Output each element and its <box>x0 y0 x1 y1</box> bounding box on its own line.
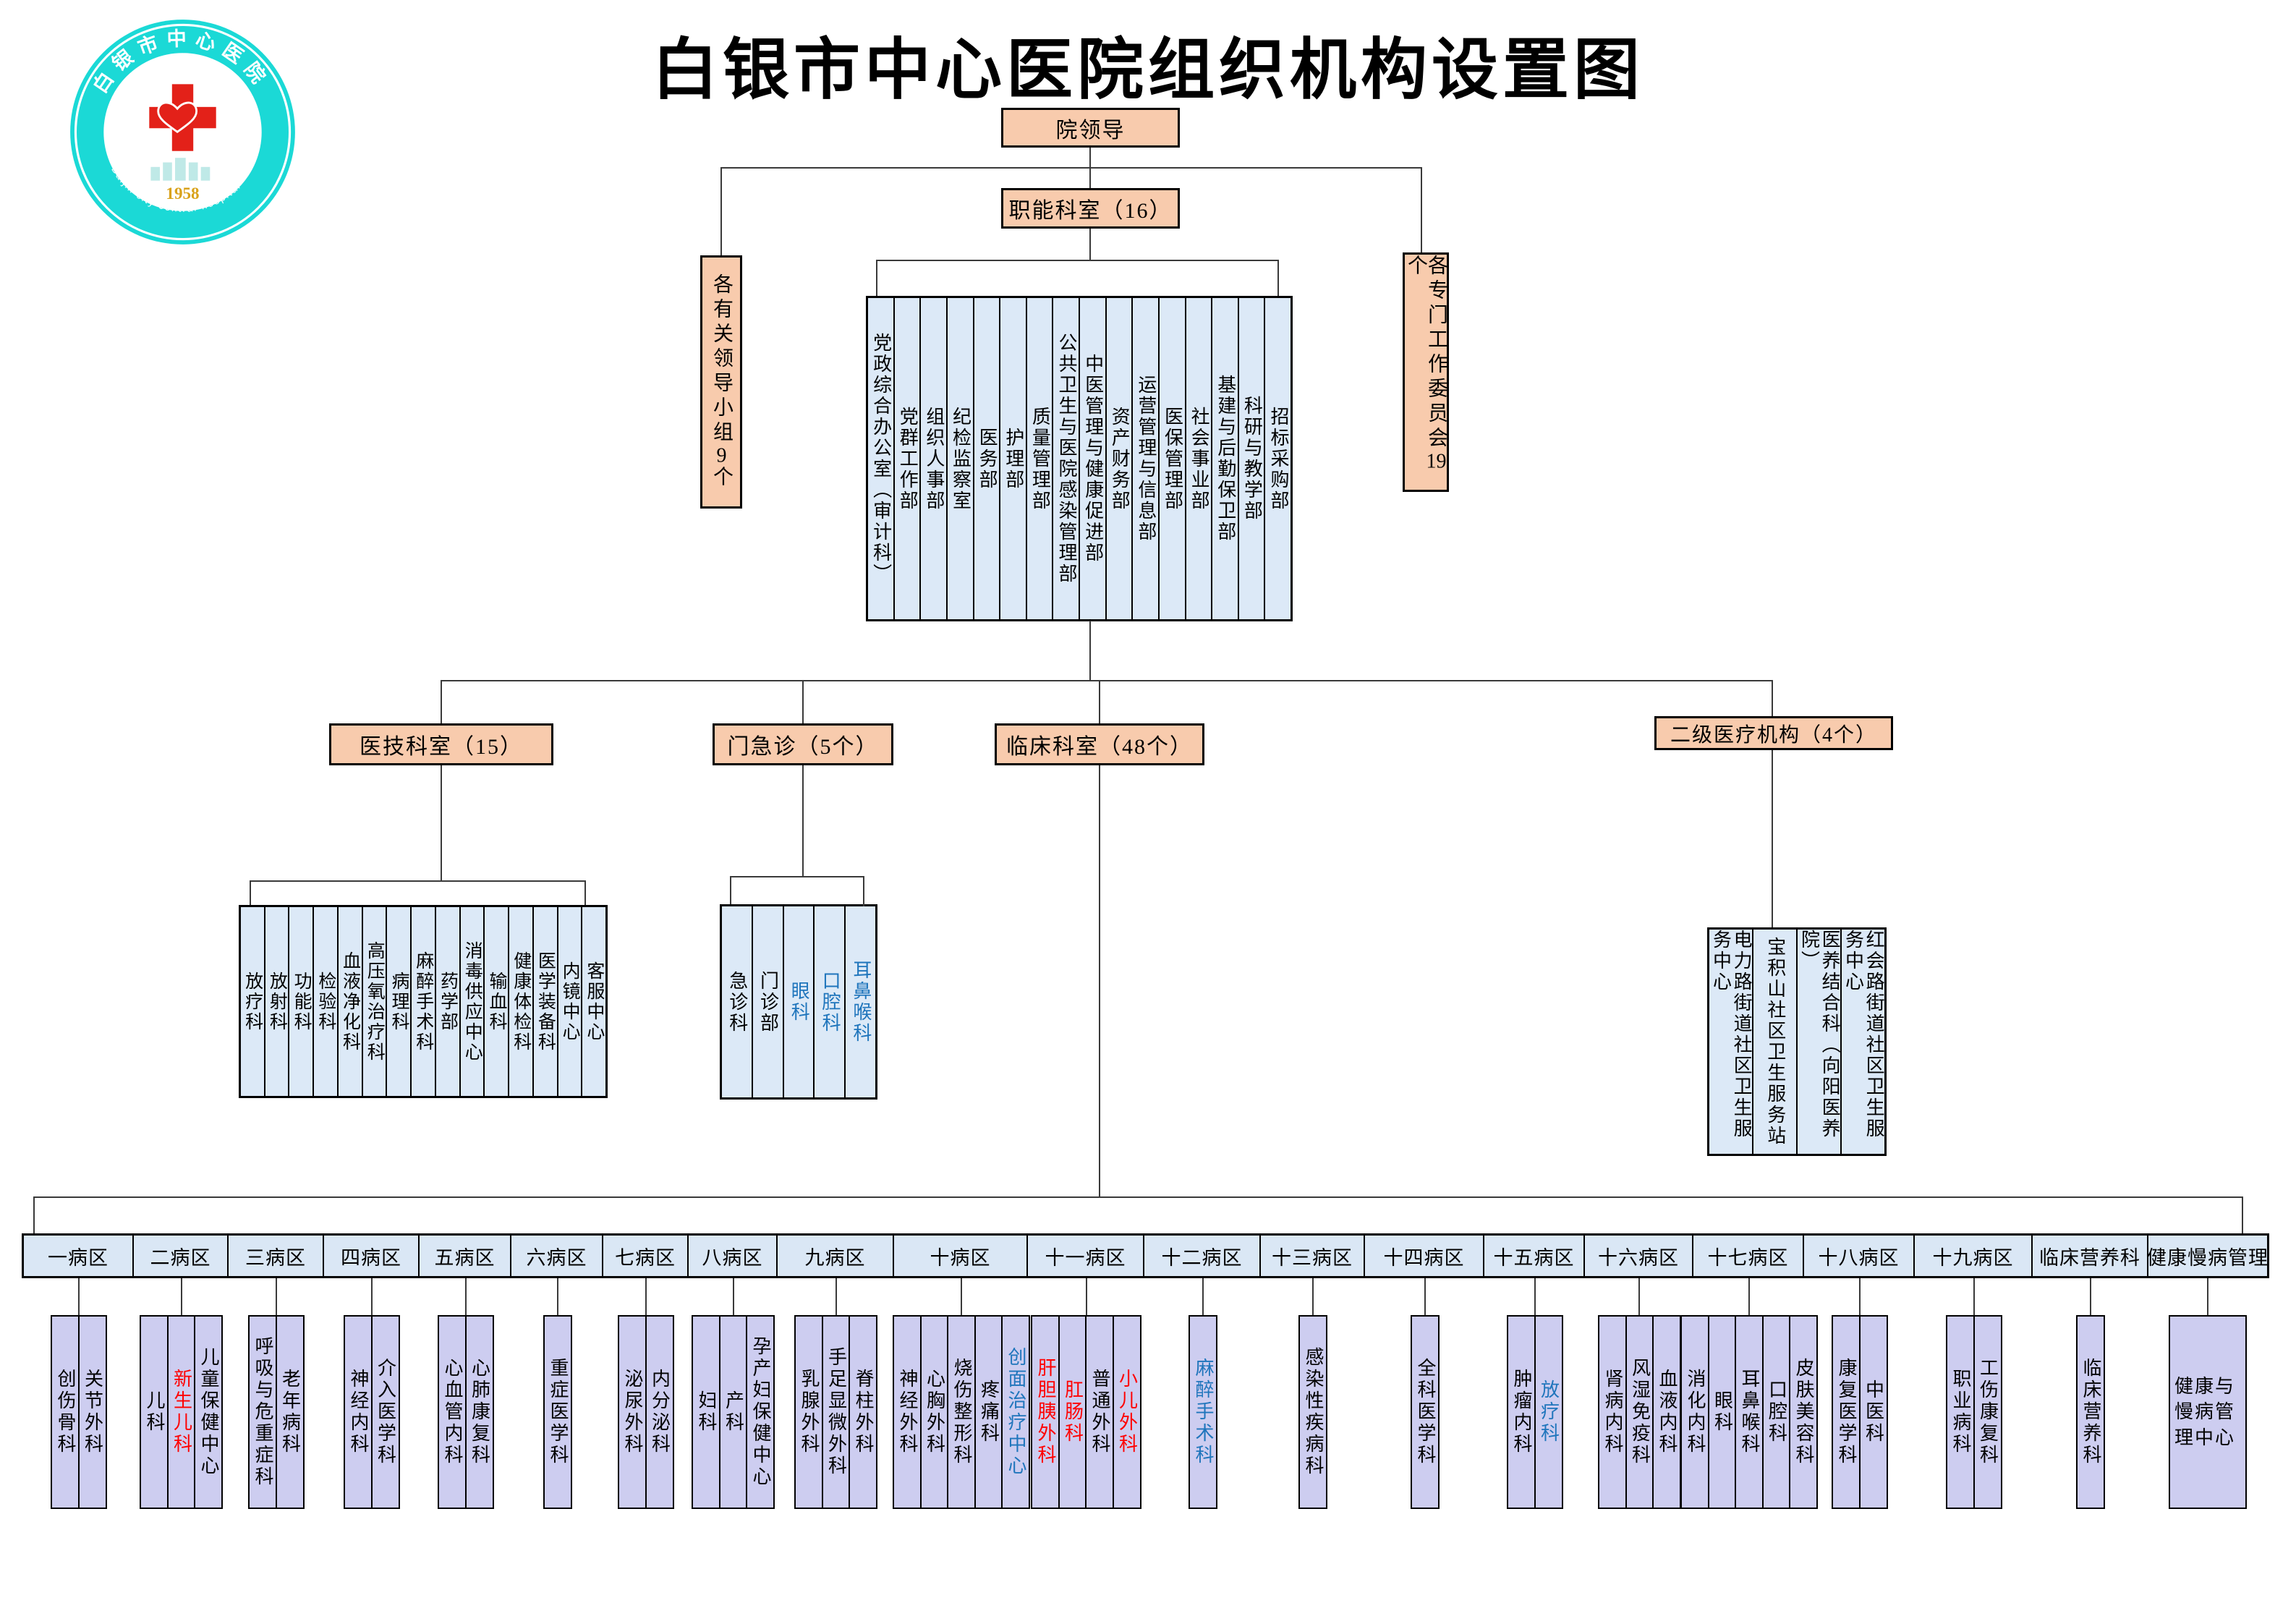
connector-line <box>371 1278 373 1315</box>
secondary-org-column-label: 红会路街道社区卫生服务中心 <box>1842 930 1884 1154</box>
ward-dept-label: 介入医学科 <box>376 1358 395 1466</box>
medtech-dept-column-label: 消毒供应中心 <box>462 941 482 1063</box>
ward-dept-box: 脊柱外科 <box>849 1315 877 1509</box>
ward-header-16: 十六病区 <box>1585 1236 1693 1276</box>
ward-dept-label: 小儿外科 <box>1118 1369 1136 1455</box>
ward-dept-box: 肾病内科 <box>1598 1315 1627 1509</box>
connector-line <box>1973 1278 1975 1315</box>
functional-dept-column: 科研与教学部 <box>1239 298 1266 619</box>
connector-line <box>78 1278 80 1315</box>
connector-line <box>2242 1196 2243 1233</box>
ward-dept-label: 神经内科 <box>349 1369 367 1455</box>
ward-dept-label: 工伤康复科 <box>1978 1358 1997 1466</box>
connector-line <box>34 1196 2242 1198</box>
page-title: 白银市中心医院组织机构设置图 <box>0 16 2296 112</box>
medtech-dept-column: 血液净化科 <box>339 907 363 1096</box>
medtech-dept-column: 高压氧治疗科 <box>363 907 388 1096</box>
connector-line <box>33 1196 35 1233</box>
ward-dept-box: 肝胆胰外科 <box>1031 1315 1060 1509</box>
medtech-dept-column: 输血科 <box>485 907 509 1096</box>
committees-box: 各专门工作委员会19个 <box>1403 252 1449 492</box>
ward-header-4: 四病区 <box>324 1236 420 1276</box>
ward-dept-label: 眼科 <box>1713 1390 1732 1434</box>
medtech-dept-column: 消毒供应中心 <box>461 907 485 1096</box>
medtech-dept-column-label: 高压氧治疗科 <box>365 941 385 1063</box>
ward-dept-box: 烧伤整形科 <box>947 1315 976 1509</box>
ward-dept-box: 内分泌科 <box>645 1315 674 1509</box>
outpatient-dept-column-label: 口腔科 <box>819 971 840 1034</box>
ward-header-2: 二病区 <box>134 1236 229 1276</box>
functional-dept-column: 医保管理部 <box>1160 298 1186 619</box>
connector-line <box>733 1278 734 1315</box>
connector-line <box>276 1278 277 1315</box>
ward-children-group-3: 呼吸与危重症科老年病科 <box>248 1315 305 1509</box>
functional-dept-column: 公共卫生与医院感染管理部 <box>1053 298 1080 619</box>
medtech-dept-column-label: 病理科 <box>389 972 409 1032</box>
ward-header-5: 五病区 <box>420 1236 511 1276</box>
ward-dept-label: 肾病内科 <box>1603 1369 1622 1455</box>
ward-dept-label: 放疗科 <box>1539 1379 1558 1445</box>
ward-children-group-20: 临床营养科 <box>2076 1315 2105 1509</box>
functional-dept-column-label: 党政综合办公室（审计科） <box>870 333 891 584</box>
ward-header-18: 十八病区 <box>1804 1236 1915 1276</box>
ward-dept-box: 产科 <box>719 1315 748 1509</box>
ward-dept-box: 呼吸与危重症科 <box>248 1315 277 1509</box>
functional-dept-column-label: 纪检监察室 <box>950 407 971 511</box>
medtech-dept-column-label: 放疗科 <box>242 972 263 1032</box>
functional-dept-column: 资产财务部 <box>1107 298 1134 619</box>
ward-dept-label: 孕产妇保健中心 <box>751 1336 770 1488</box>
medtech-dept-column-label: 健康体检科 <box>511 951 531 1053</box>
connector-line <box>802 680 804 723</box>
connector-line <box>645 1278 647 1315</box>
ward-header-7: 七病区 <box>603 1236 689 1276</box>
ward-children-group-4: 神经内科介入医学科 <box>344 1315 400 1509</box>
ward-dept-label: 全科医学科 <box>1416 1358 1434 1466</box>
ward-header-17: 十七病区 <box>1693 1236 1804 1276</box>
ward-children-group-15: 肿瘤内科放疗科 <box>1507 1315 1563 1509</box>
functional-dept-column-label: 公共卫生与医院感染管理部 <box>1055 333 1076 584</box>
leading-groups-text: 各有关领导小组 <box>710 273 733 446</box>
org-chart-canvas: 白银市中心医院 Baijin city central hospital 195… <box>0 0 2296 1624</box>
ward-dept-label: 职业病科 <box>1951 1369 1970 1455</box>
ward-children-group-11: 肝胆胰外科肛肠科普通外科小儿外科 <box>1031 1315 1141 1509</box>
connector-line <box>1859 1278 1861 1315</box>
connector-line <box>181 1278 182 1315</box>
functional-dept-column-label: 中医管理与健康促进部 <box>1082 354 1103 564</box>
connector-line <box>1748 1278 1750 1315</box>
medtech-dept-column: 麻醉手术科 <box>412 907 436 1096</box>
ward-dept-label: 康复医学科 <box>1837 1358 1855 1466</box>
ward-children-group-1: 创伤骨科关节外科 <box>51 1315 107 1509</box>
functional-dept-column: 医务部 <box>974 298 1001 619</box>
ward-dept-box: 创面治疗中心 <box>1001 1315 1030 1509</box>
ward-children-group-8: 妇科产科孕产妇保健中心 <box>692 1315 775 1509</box>
outpatient-dept-column-label: 眼科 <box>788 981 809 1023</box>
ward-header-15: 十五病区 <box>1484 1236 1585 1276</box>
connector-line <box>877 260 1279 261</box>
ward-dept-box: 孕产妇保健中心 <box>746 1315 775 1509</box>
secondary-org-column-label: 医养结合科（向阳医养院） <box>1798 930 1840 1154</box>
secondary-org-column-label: 宝积山社区卫生服务站 <box>1764 937 1785 1147</box>
ward-header-19: 十九病区 <box>1915 1236 2033 1276</box>
connector-line <box>1277 260 1279 296</box>
ward-dept-box: 心胸外科 <box>920 1315 949 1509</box>
ward-dept-label: 手足显微外科 <box>827 1347 846 1477</box>
outpatient-dept-column: 眼科 <box>784 906 815 1097</box>
ward-children-group-5: 心血管内科心肺康复科 <box>438 1315 494 1509</box>
ward-dept-box: 关节外科 <box>78 1315 107 1509</box>
ward-children-group-21: 健康与慢病管理中心 <box>2169 1315 2247 1509</box>
ward-dept-label: 儿科 <box>145 1390 163 1434</box>
connector-line <box>441 765 442 881</box>
outpatient-strip: 急诊科门诊部眼科口腔科耳鼻喉科 <box>720 904 877 1100</box>
functional-dept-column-label: 社会事业部 <box>1189 407 1209 511</box>
ward-dept-label: 中医科 <box>1864 1379 1883 1445</box>
medtech-dept-column-label: 功能科 <box>292 972 312 1032</box>
secondary-org-column: 宝积山社区卫生服务站 <box>1753 930 1798 1154</box>
medtech-dept-column-label: 输血科 <box>486 972 506 1032</box>
ward-children-group-13: 感染性疾病科 <box>1298 1315 1327 1509</box>
connector-line <box>2090 1278 2091 1315</box>
connector-line <box>876 260 877 296</box>
connector-line <box>1086 1278 1087 1315</box>
ward-header-12: 十二病区 <box>1144 1236 1261 1276</box>
secondary-org-column: 电力路街道社区卫生服务中心 <box>1709 930 1753 1154</box>
medtech-dept-column-label: 客服中心 <box>584 961 604 1042</box>
ward-dept-label: 妇科 <box>697 1390 715 1434</box>
medtech-header: 医技科室（15） <box>329 723 553 765</box>
connector-line <box>1772 680 1773 716</box>
ward-dept-label: 心肺康复科 <box>470 1358 489 1466</box>
connector-line <box>720 167 722 255</box>
ward-dept-box: 耳鼻喉科 <box>1735 1315 1764 1509</box>
functional-dept-column-label: 医务部 <box>977 428 998 490</box>
ward-dept-box: 肛肠科 <box>1058 1315 1087 1509</box>
functional-dept-column-label: 基建与后勤保卫部 <box>1215 375 1236 543</box>
ward-header-10: 十病区 <box>894 1236 1028 1276</box>
medtech-dept-column-label: 放射科 <box>267 972 287 1032</box>
ward-dept-box: 工伤康复科 <box>1973 1315 2002 1509</box>
secondary-org-column: 医养结合科（向阳医养院） <box>1798 930 1842 1154</box>
connector-line <box>441 680 1772 681</box>
ward-dept-label: 脊柱外科 <box>854 1369 872 1455</box>
committees-text: 各专门工作委员会 <box>1425 255 1447 451</box>
medtech-dept-column-label: 检验科 <box>315 972 336 1032</box>
functional-dept-column: 中医管理与健康促进部 <box>1080 298 1107 619</box>
ward-dept-label: 儿童保健中心 <box>199 1347 218 1477</box>
medtech-dept-column: 功能科 <box>289 907 314 1096</box>
medtech-dept-column: 医学装备科 <box>534 907 558 1096</box>
ward-dept-label: 健康与慢病管理中心 <box>2170 1374 2245 1450</box>
connector-line <box>1202 1278 1204 1315</box>
connector-line <box>1099 680 1100 723</box>
ward-dept-label: 肝胆胰外科 <box>1036 1358 1055 1466</box>
ward-dept-label: 血液内科 <box>1657 1369 1676 1455</box>
functional-dept-column-label: 资产财务部 <box>1109 407 1130 511</box>
ward-dept-label: 耳鼻喉科 <box>1740 1369 1759 1455</box>
ward-header-13: 十三病区 <box>1261 1236 1365 1276</box>
connector-line <box>802 765 804 877</box>
ward-dept-label: 神经外科 <box>898 1369 917 1455</box>
functional-dept-column-label: 医保管理部 <box>1162 407 1183 511</box>
ward-dept-label: 重症医学科 <box>548 1358 567 1466</box>
ward-dept-box: 介入医学科 <box>371 1315 400 1509</box>
ward-children-group-17: 消化内科眼科耳鼻喉科口腔科皮肤美容科 <box>1680 1315 1818 1509</box>
ward-header-1: 一病区 <box>24 1236 134 1276</box>
connector-line <box>730 876 731 904</box>
ward-dept-box: 老年病科 <box>276 1315 305 1509</box>
leading-groups-count: 9 <box>710 446 733 466</box>
connector-line <box>465 1278 467 1315</box>
ward-dept-box: 儿童保健中心 <box>194 1315 223 1509</box>
ward-dept-box: 妇科 <box>692 1315 720 1509</box>
functional-dept-column-label: 科研与教学部 <box>1241 396 1262 522</box>
ward-dept-box: 放疗科 <box>1534 1315 1563 1509</box>
ward-dept-box: 健康与慢病管理中心 <box>2169 1315 2247 1509</box>
ward-dept-label: 消化内科 <box>1685 1369 1704 1455</box>
ward-dept-label: 风湿免疫科 <box>1630 1358 1649 1466</box>
connector-line <box>961 1278 962 1315</box>
ward-children-group-10: 神经外科心胸外科烧伤整形科疼痛科创面治疗中心 <box>893 1315 1030 1509</box>
ward-header-3: 三病区 <box>229 1236 324 1276</box>
ward-dept-box: 中医科 <box>1859 1315 1888 1509</box>
connector-line <box>1424 1278 1426 1315</box>
functional-depts-strip: 党政综合办公室（审计科）党群工作部组织人事部纪检监察室医务部护理部质量管理部公共… <box>866 296 1293 621</box>
ward-dept-box: 康复医学科 <box>1832 1315 1861 1509</box>
ward-dept-box: 麻醉手术科 <box>1189 1315 1217 1509</box>
ward-children-group-7: 泌尿外科内分泌科 <box>618 1315 674 1509</box>
ward-dept-box: 创伤骨科 <box>51 1315 80 1509</box>
medtech-dept-column-label: 内镜中心 <box>560 961 580 1042</box>
ward-children-group-19: 职业病科工伤康复科 <box>1946 1315 2002 1509</box>
secondary-org-column-label: 电力路街道社区卫生服务中心 <box>1710 930 1751 1154</box>
connector-line <box>250 880 586 882</box>
connector-line <box>721 167 1422 169</box>
outpatient-header: 门急诊（5个） <box>713 723 893 765</box>
ward-dept-box: 职业病科 <box>1946 1315 1975 1509</box>
functional-dept-column: 党群工作部 <box>895 298 922 619</box>
functional-dept-column-label: 运营管理与信息部 <box>1135 375 1156 543</box>
secondary-strip: 电力路街道社区卫生服务中心宝积山社区卫生服务站医养结合科（向阳医养院）红会路街道… <box>1707 927 1887 1156</box>
ward-dept-label: 乳腺外科 <box>799 1369 818 1455</box>
connector-line <box>1421 167 1422 252</box>
outpatient-dept-column: 门诊部 <box>753 906 784 1097</box>
ward-dept-label: 心胸外科 <box>925 1369 944 1455</box>
medtech-strip: 放疗科放射科功能科检验科血液净化科高压氧治疗科病理科麻醉手术科药学部消毒供应中心… <box>239 905 608 1098</box>
functional-dept-column: 党政综合办公室（审计科） <box>868 298 895 619</box>
medtech-dept-column: 检验科 <box>314 907 339 1096</box>
ward-dept-label: 麻醉手术科 <box>1194 1358 1212 1466</box>
functional-dept-column: 社会事业部 <box>1186 298 1213 619</box>
outpatient-dept-column-label: 急诊科 <box>726 971 747 1034</box>
root-box-hospital-leadership: 院领导 <box>1001 108 1180 148</box>
ward-dept-box: 全科医学科 <box>1411 1315 1440 1509</box>
ward-children-group-14: 全科医学科 <box>1411 1315 1440 1509</box>
ward-dept-label: 疼痛科 <box>979 1379 998 1445</box>
functional-dept-column-label: 党群工作部 <box>897 407 918 511</box>
medtech-dept-column: 放射科 <box>265 907 290 1096</box>
ward-dept-box: 风湿免疫科 <box>1625 1315 1654 1509</box>
ward-children-group-12: 麻醉手术科 <box>1189 1315 1217 1509</box>
ward-dept-box: 儿科 <box>140 1315 169 1509</box>
ward-dept-box: 消化内科 <box>1680 1315 1709 1509</box>
ward-dept-box: 小儿外科 <box>1113 1315 1141 1509</box>
medtech-dept-column-label: 药学部 <box>438 972 458 1032</box>
ward-dept-label: 心血管内科 <box>443 1358 462 1466</box>
ward-header-14: 十四病区 <box>1365 1236 1484 1276</box>
ward-dept-label: 口腔科 <box>1767 1379 1786 1445</box>
outpatient-dept-column: 口腔科 <box>815 906 846 1097</box>
ward-dept-label: 烧伤整形科 <box>952 1358 971 1466</box>
secondary-org-column: 红会路街道社区卫生服务中心 <box>1842 930 1884 1154</box>
connector-line <box>1099 765 1100 1197</box>
ward-header-9: 九病区 <box>778 1236 894 1276</box>
ward-dept-box: 疼痛科 <box>974 1315 1003 1509</box>
ward-dept-label: 肛肠科 <box>1063 1379 1082 1445</box>
ward-children-group-16: 肾病内科风湿免疫科血液内科 <box>1598 1315 1681 1509</box>
connector-line <box>441 680 442 723</box>
ward-dept-box: 口腔科 <box>1762 1315 1791 1509</box>
connector-line <box>250 880 251 905</box>
functional-dept-column-label: 护理部 <box>1003 428 1024 490</box>
functional-dept-column: 组织人事部 <box>921 298 948 619</box>
ward-dept-label: 新生儿科 <box>172 1369 191 1455</box>
connector-line <box>584 880 586 905</box>
functional-dept-column: 基建与后勤保卫部 <box>1212 298 1239 619</box>
ward-dept-box: 新生儿科 <box>167 1315 196 1509</box>
medtech-dept-column-label: 医学装备科 <box>535 951 556 1053</box>
functional-dept-column-label: 组织人事部 <box>923 407 944 511</box>
outpatient-dept-column-label: 门诊部 <box>757 971 778 1034</box>
connector-line <box>1772 750 1773 927</box>
ward-dept-label: 感染性疾病科 <box>1304 1347 1322 1477</box>
medtech-dept-column: 健康体检科 <box>509 907 534 1096</box>
ward-children-group-6: 重症医学科 <box>543 1315 572 1509</box>
ward-dept-box: 临床营养科 <box>2076 1315 2105 1509</box>
outpatient-dept-column-label: 耳鼻喉科 <box>850 960 871 1044</box>
connector-line <box>1089 229 1091 260</box>
ward-dept-label: 泌尿外科 <box>623 1369 642 1455</box>
medtech-dept-column: 内镜中心 <box>558 907 583 1096</box>
ward-dept-box: 眼科 <box>1708 1315 1737 1509</box>
ward-dept-label: 产科 <box>724 1390 743 1434</box>
clinical-header: 临床科室（48个） <box>995 723 1204 765</box>
ward-dept-box: 重症医学科 <box>543 1315 572 1509</box>
ward-dept-box: 普通外科 <box>1085 1315 1114 1509</box>
leading-groups-box: 各有关领导小组9个 <box>700 255 742 509</box>
medtech-dept-column: 药学部 <box>436 907 461 1096</box>
ward-header-21: 健康慢病管理 <box>2148 1236 2267 1276</box>
ward-children-group-9: 乳腺外科手足显微外科脊柱外科 <box>794 1315 877 1509</box>
ward-header-6: 六病区 <box>511 1236 603 1276</box>
outpatient-dept-column: 急诊科 <box>722 906 753 1097</box>
medtech-dept-column: 病理科 <box>387 907 412 1096</box>
medtech-dept-column: 客服中心 <box>582 907 605 1096</box>
connector-line <box>1312 1278 1314 1315</box>
connector-line <box>731 876 864 877</box>
connector-line <box>1089 621 1091 681</box>
secondary-header: 二级医疗机构（4个） <box>1654 716 1893 750</box>
medtech-dept-column-label: 血液净化科 <box>340 951 360 1053</box>
ward-dept-box: 皮肤美容科 <box>1789 1315 1818 1509</box>
logo-year: 1958 <box>166 184 199 203</box>
functional-depts-header: 职能科室（16） <box>1001 188 1180 229</box>
ward-dept-box: 心血管内科 <box>438 1315 467 1509</box>
ward-dept-label: 内分泌科 <box>650 1369 669 1455</box>
ward-dept-box: 心肺康复科 <box>465 1315 494 1509</box>
functional-dept-column: 护理部 <box>1000 298 1027 619</box>
outpatient-dept-column: 耳鼻喉科 <box>846 906 875 1097</box>
medtech-dept-column: 放疗科 <box>241 907 265 1096</box>
committees-suffix: 个 <box>1405 255 1427 279</box>
functional-dept-column-label: 招标采购部 <box>1267 407 1288 511</box>
functional-dept-column: 纪检监察室 <box>948 298 974 619</box>
ward-dept-box: 神经内科 <box>344 1315 373 1509</box>
ward-dept-label: 临床营养科 <box>2081 1358 2100 1466</box>
ward-dept-label: 呼吸与危重症科 <box>253 1336 272 1488</box>
ward-dept-label: 创伤骨科 <box>56 1369 75 1455</box>
ward-header-20: 临床营养科 <box>2033 1236 2148 1276</box>
connector-line <box>863 876 864 906</box>
leading-groups-suffix: 个 <box>710 466 733 490</box>
connector-line <box>1534 1278 1536 1315</box>
ward-header-8: 八病区 <box>689 1236 778 1276</box>
ward-children-group-2: 儿科新生儿科儿童保健中心 <box>140 1315 223 1509</box>
ward-dept-box: 感染性疾病科 <box>1298 1315 1327 1509</box>
ward-dept-box: 神经外科 <box>893 1315 922 1509</box>
committees-count: 19 <box>1425 451 1447 472</box>
ward-dept-label: 皮肤美容科 <box>1794 1358 1813 1466</box>
ward-dept-box: 肿瘤内科 <box>1507 1315 1536 1509</box>
ward-dept-label: 肿瘤内科 <box>1512 1369 1531 1455</box>
functional-dept-column: 运营管理与信息部 <box>1133 298 1160 619</box>
ward-dept-box: 血液内科 <box>1652 1315 1681 1509</box>
ward-header-11: 十一病区 <box>1028 1236 1144 1276</box>
ward-header-strip: 一病区二病区三病区四病区五病区六病区七病区八病区九病区十病区十一病区十二病区十三… <box>22 1233 2269 1278</box>
connector-line <box>557 1278 558 1315</box>
connector-line <box>1638 1278 1640 1315</box>
ward-children-group-18: 康复医学科中医科 <box>1832 1315 1888 1509</box>
ward-dept-box: 泌尿外科 <box>618 1315 647 1509</box>
ward-dept-box: 乳腺外科 <box>794 1315 823 1509</box>
ward-dept-label: 创面治疗中心 <box>1006 1347 1025 1477</box>
ward-dept-label: 关节外科 <box>83 1369 102 1455</box>
ward-dept-label: 普通外科 <box>1090 1369 1109 1455</box>
connector-line <box>2207 1278 2208 1315</box>
functional-dept-column: 质量管理部 <box>1027 298 1054 619</box>
ward-dept-label: 老年病科 <box>281 1369 299 1455</box>
functional-dept-column: 招标采购部 <box>1265 298 1291 619</box>
connector-line <box>836 1278 837 1315</box>
ward-dept-box: 手足显微外科 <box>822 1315 851 1509</box>
medtech-dept-column-label: 麻醉手术科 <box>413 951 433 1053</box>
functional-dept-column-label: 质量管理部 <box>1029 407 1050 511</box>
